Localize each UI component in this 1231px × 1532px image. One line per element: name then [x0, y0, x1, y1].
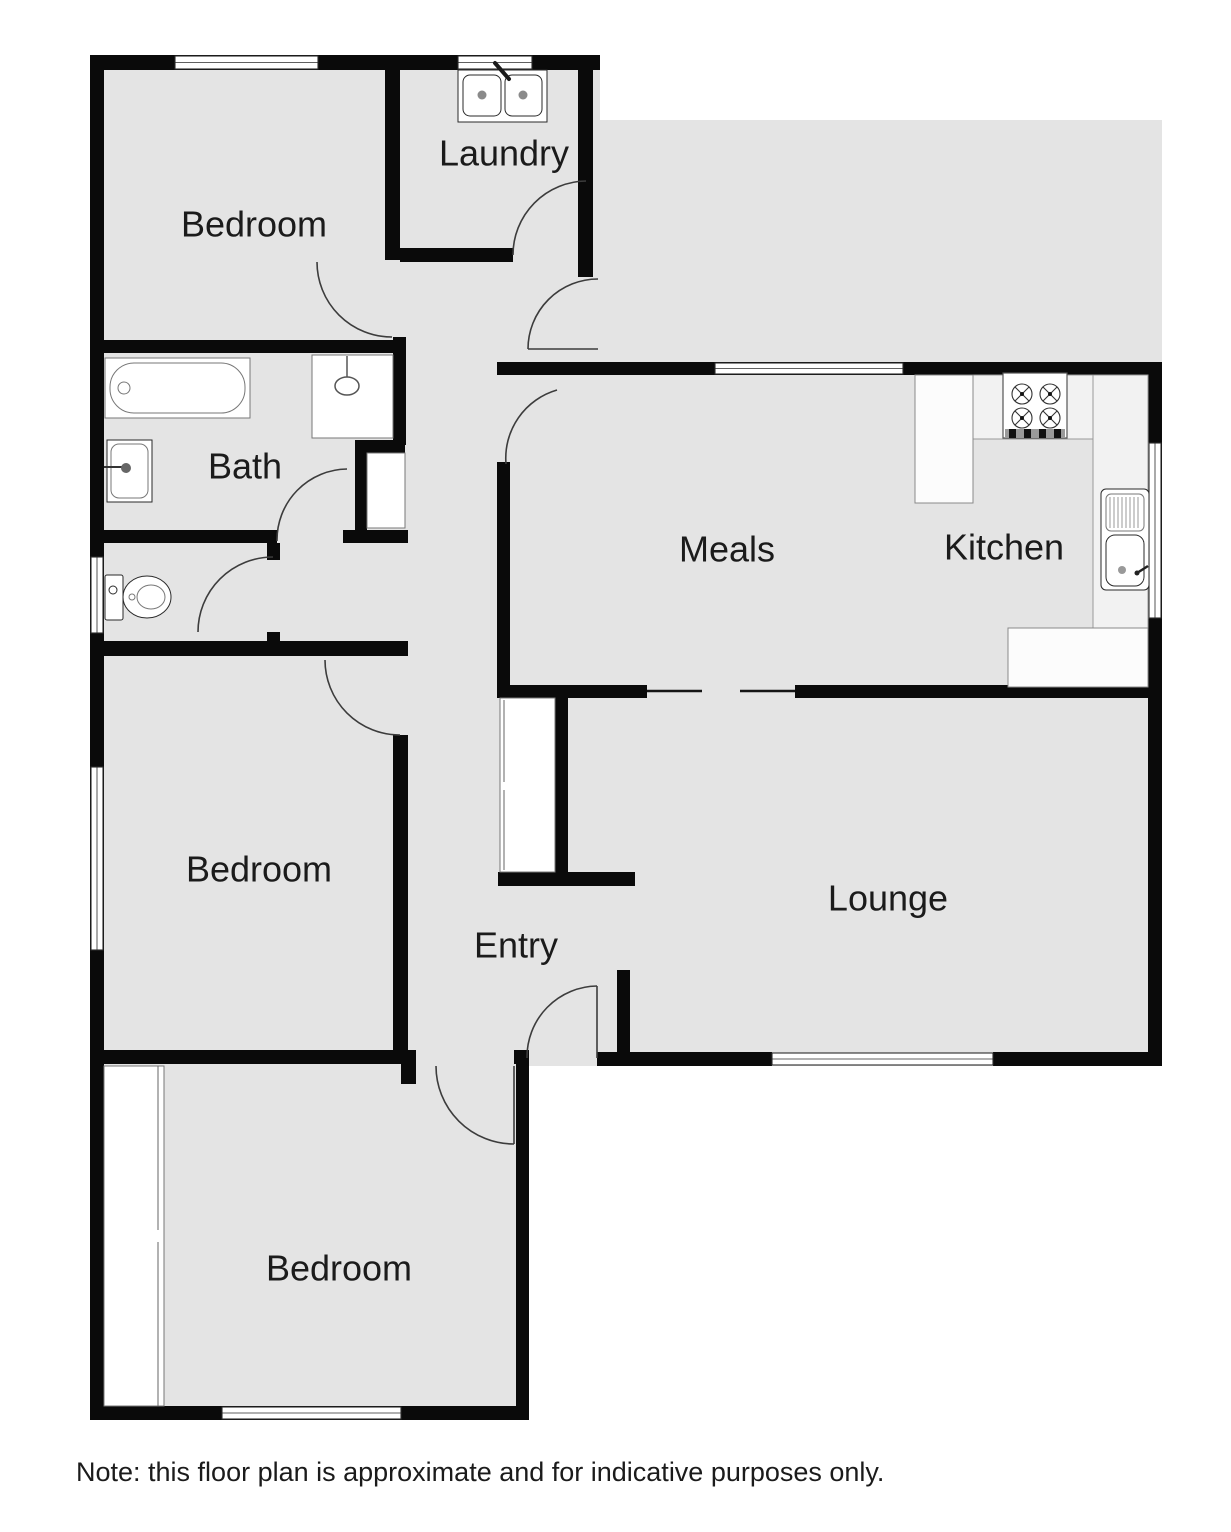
wall-lounge-entry-stub: [617, 970, 630, 1058]
room-label-bath: Bath: [208, 446, 282, 487]
disclaimer-note: Note: this floor plan is approximate and…: [76, 1457, 884, 1487]
shower-icon: [312, 355, 393, 438]
wall-bedroom1-bath: [90, 340, 400, 353]
bathtub-icon: [105, 358, 250, 418]
stove-icon: [1003, 373, 1067, 438]
window-bedroom-1: [175, 56, 318, 69]
wall-entry-closet-right: [555, 697, 568, 872]
wall-lounge-bottom-left: [597, 1052, 772, 1066]
wall-linen-left: [355, 440, 367, 543]
wall-shower-right: [393, 337, 406, 445]
wall-entry-closet-bottom: [498, 872, 635, 886]
wall-bath-bottom-stub: [343, 530, 408, 543]
room-label-bedroom-3: Bedroom: [266, 1248, 412, 1289]
room-label-meals: Meals: [679, 529, 775, 570]
window-bedroom-3: [222, 1407, 401, 1419]
kitchen-sink-icon: [1101, 489, 1149, 590]
entry-cupboard: [500, 698, 555, 872]
window-lounge: [772, 1053, 993, 1065]
wall-wc-bottom: [90, 641, 408, 656]
laundry-sink-icon: [458, 63, 547, 122]
window-wc: [91, 557, 103, 633]
bath-basin-icon: [104, 440, 152, 502]
built-in-robe: [104, 1066, 164, 1406]
room-label-kitchen: Kitchen: [944, 527, 1064, 568]
wall-meals-bottom-left: [497, 685, 647, 698]
kitchen-counter-left: [915, 375, 973, 503]
kitchen-counter-bottom: [1008, 628, 1148, 687]
wall-bath-bottom: [90, 530, 277, 543]
toilet-icon: [105, 575, 171, 620]
room-label-laundry: Laundry: [439, 133, 569, 174]
floor-plan-page: Bedroom Laundry Bath Meals Kitchen Bedro…: [0, 0, 1231, 1532]
floor-areas: [90, 55, 1162, 1420]
wall-bedroom2-bottom: [90, 1050, 416, 1064]
window-kitchen: [1149, 443, 1161, 618]
wall-laundry-bottom: [400, 248, 513, 262]
wall-left-outer: [90, 55, 104, 1420]
window-meals: [715, 363, 903, 374]
wall-bedroom2-right: [393, 735, 408, 1056]
wall-bedroom3-top-stub: [401, 1050, 416, 1084]
wall-bedroom3-right: [516, 1050, 529, 1420]
room-label-bedroom-2: Bedroom: [186, 849, 332, 890]
floor-plan-canvas: Bedroom Laundry Bath Meals Kitchen Bedro…: [0, 0, 1231, 1532]
room-label-bedroom-1: Bedroom: [181, 204, 327, 245]
linen-cupboard: [367, 453, 405, 528]
wall-lounge-bottom-right: [993, 1052, 1162, 1066]
room-label-entry: Entry: [474, 925, 558, 966]
exterior-courtyard-area: [593, 120, 1162, 365]
wall-meals-left: [497, 462, 510, 698]
wall-bedroom1-right: [385, 70, 400, 260]
room-label-lounge: Lounge: [828, 878, 948, 919]
window-bedroom-2: [91, 767, 103, 950]
wall-laundry-right: [578, 55, 593, 277]
